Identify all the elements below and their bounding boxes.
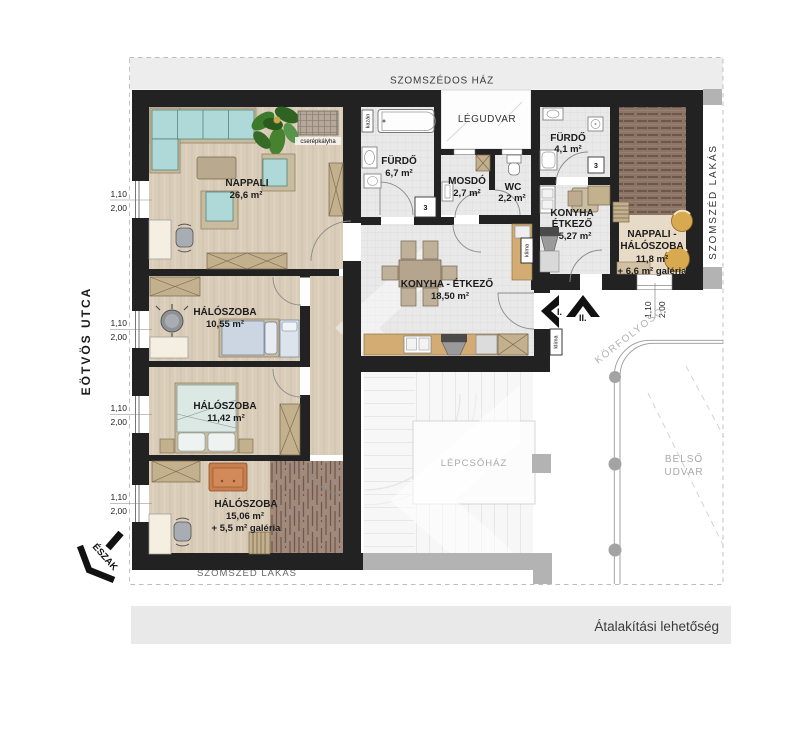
svg-text:II.: II. [579, 313, 587, 323]
svg-text:2,00: 2,00 [110, 203, 127, 213]
svg-text:kazán: kazán [366, 114, 372, 129]
svg-text:1,10: 1,10 [110, 492, 127, 502]
svg-text:FÜRDŐ: FÜRDŐ [550, 131, 586, 144]
svg-text:WC: WC [505, 182, 522, 193]
svg-text:EÖTVÖS UTCA: EÖTVÖS UTCA [78, 287, 93, 396]
svg-text:2,00: 2,00 [110, 332, 127, 342]
svg-text:I.: I. [557, 307, 562, 317]
svg-text:SZOMSZÉD LAKÁS: SZOMSZÉD LAKÁS [706, 144, 719, 260]
svg-text:MOSDÓ: MOSDÓ [448, 174, 486, 187]
svg-text:5,27 m²: 5,27 m² [559, 231, 592, 242]
svg-text:26,6 m²: 26,6 m² [230, 190, 263, 201]
svg-text:UDVAR: UDVAR [664, 467, 703, 478]
svg-text:3: 3 [424, 205, 428, 212]
svg-text:cserépkályha: cserépkályha [300, 139, 336, 145]
svg-text:10,55 m²: 10,55 m² [206, 319, 244, 330]
svg-text:KONYHA: KONYHA [550, 208, 593, 219]
svg-text:SZOMSZÉDOS HÁZ: SZOMSZÉDOS HÁZ [390, 74, 494, 87]
svg-text:11,8 m²: 11,8 m² [636, 254, 668, 265]
svg-text:2,00: 2,00 [110, 506, 127, 516]
svg-text:+ 5,5 m² galéria: + 5,5 m² galéria [212, 523, 282, 534]
svg-text:15,06 m²: 15,06 m² [226, 511, 264, 522]
svg-text:HÁLÓSZOBA: HÁLÓSZOBA [193, 305, 256, 318]
svg-text:2,2 m²: 2,2 m² [498, 193, 525, 204]
svg-text:+ 6,6 m² galéria: + 6,6 m² galéria [618, 266, 688, 277]
svg-text:1,10: 1,10 [110, 403, 127, 413]
svg-text:BELSŐ: BELSŐ [665, 451, 703, 465]
svg-text:LÉPCSŐHÁZ: LÉPCSŐHÁZ [441, 458, 508, 469]
svg-text:ÉTKEZŐ: ÉTKEZŐ [552, 217, 593, 230]
svg-text:klíma: klíma [554, 334, 560, 348]
svg-text:HÁLÓSZOBA: HÁLÓSZOBA [620, 239, 683, 252]
svg-text:1,10: 1,10 [110, 318, 127, 328]
svg-text:Átalakítási lehetőség: Átalakítási lehetőség [594, 619, 719, 634]
svg-text:2,7 m²: 2,7 m² [453, 188, 480, 199]
svg-text:2,00: 2,00 [110, 417, 127, 427]
svg-text:HÁLÓSZOBA: HÁLÓSZOBA [193, 399, 256, 412]
svg-text:FÜRDŐ: FÜRDŐ [381, 154, 417, 167]
svg-text:3: 3 [594, 163, 598, 170]
svg-text:klíma: klíma [525, 243, 531, 257]
svg-text:1,10: 1,10 [110, 189, 127, 199]
svg-text:4,1 m²: 4,1 m² [554, 144, 581, 155]
svg-text:18,50 m²: 18,50 m² [431, 291, 469, 302]
svg-text:LÉGUDVAR: LÉGUDVAR [458, 112, 516, 125]
svg-text:6,7 m²: 6,7 m² [385, 168, 412, 179]
svg-text:NAPPALI: NAPPALI [225, 178, 268, 189]
svg-text:NAPPALI -: NAPPALI - [627, 229, 676, 240]
svg-text:KONYHA - ÉTKEZŐ: KONYHA - ÉTKEZŐ [401, 277, 494, 290]
svg-text:11,42 m²: 11,42 m² [207, 413, 245, 424]
svg-text:HÁLÓSZOBA: HÁLÓSZOBA [214, 497, 277, 510]
